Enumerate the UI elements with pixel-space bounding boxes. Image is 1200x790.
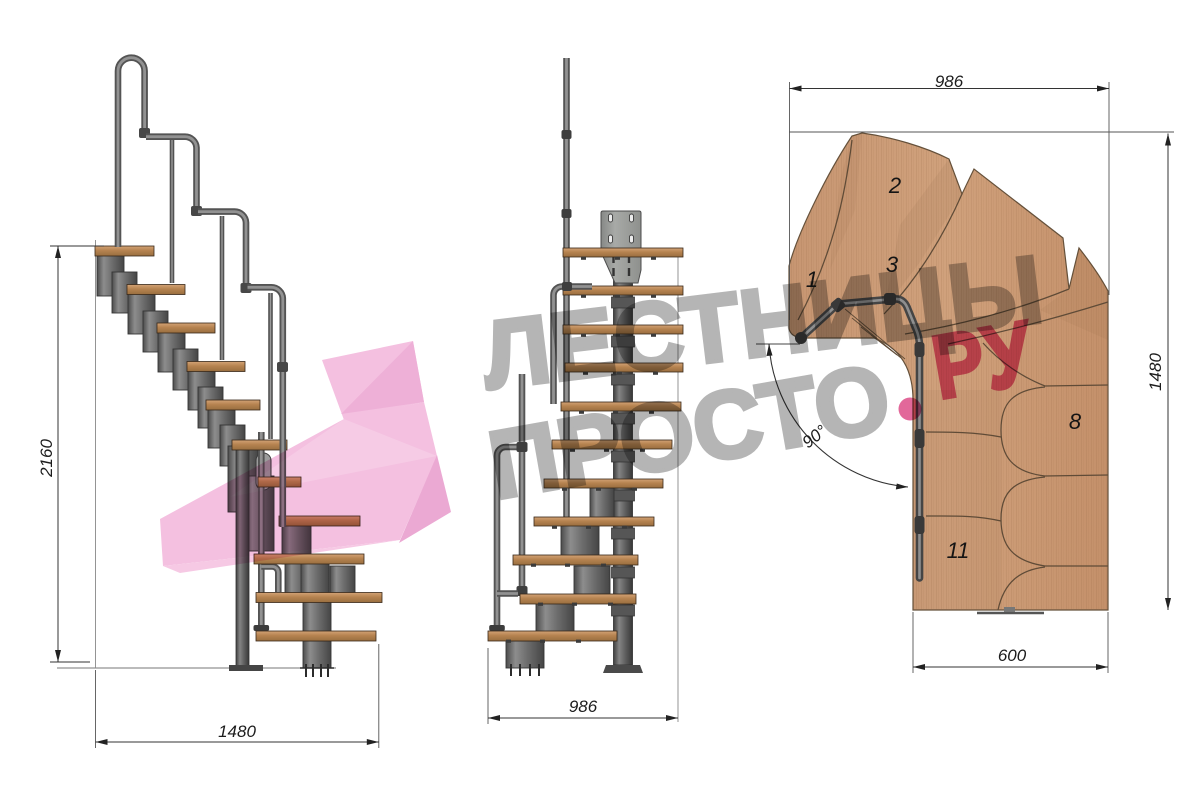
svg-text:8: 8 (1069, 409, 1082, 434)
svg-text:1480: 1480 (218, 722, 256, 741)
svg-text:600: 600 (998, 646, 1027, 665)
svg-text:11: 11 (947, 538, 970, 563)
svg-text:1480: 1480 (1146, 353, 1165, 391)
svg-text:РУ: РУ (925, 301, 1042, 418)
svg-text:986: 986 (569, 697, 598, 716)
svg-text:2160: 2160 (37, 439, 56, 478)
svg-text:2: 2 (888, 173, 901, 198)
svg-text:986: 986 (935, 72, 964, 91)
